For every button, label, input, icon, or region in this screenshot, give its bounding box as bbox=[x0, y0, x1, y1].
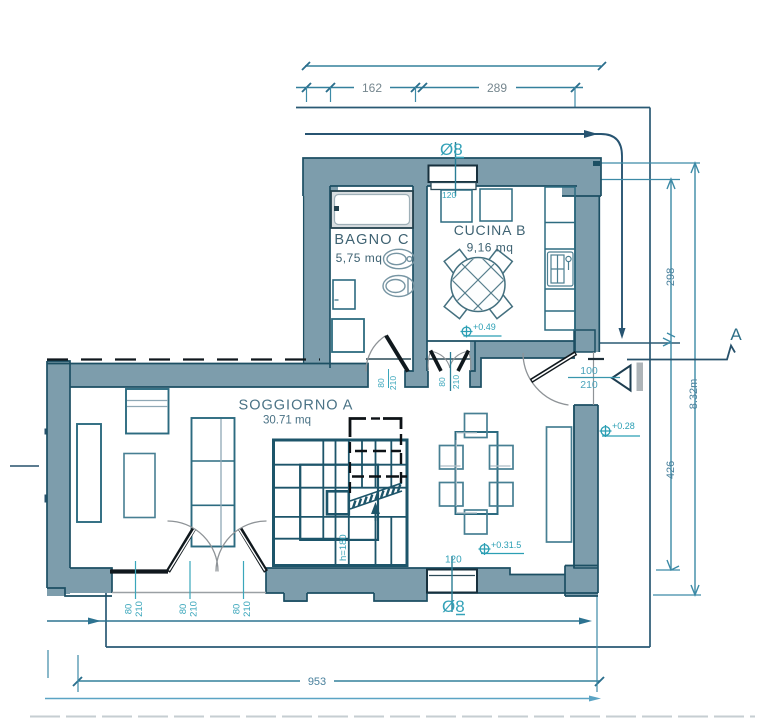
svg-text:426: 426 bbox=[665, 461, 677, 479]
svg-text:A: A bbox=[730, 325, 742, 344]
svg-text:298: 298 bbox=[665, 268, 677, 286]
svg-text:210: 210 bbox=[242, 601, 253, 617]
svg-text:80: 80 bbox=[376, 378, 386, 388]
svg-text:80: 80 bbox=[178, 604, 189, 615]
svg-text:210: 210 bbox=[451, 375, 461, 389]
svg-text:+0.49: +0.49 bbox=[473, 322, 496, 332]
svg-text:210: 210 bbox=[580, 379, 598, 391]
svg-text:Ø8: Ø8 bbox=[440, 140, 463, 159]
svg-text:SOGGIORNO A: SOGGIORNO A bbox=[239, 398, 354, 414]
svg-text:120: 120 bbox=[445, 555, 462, 566]
svg-text:80: 80 bbox=[232, 604, 243, 615]
svg-text:80: 80 bbox=[124, 604, 135, 615]
svg-text:+0.31.5: +0.31.5 bbox=[491, 540, 521, 550]
svg-text:h=180: h=180 bbox=[338, 534, 349, 561]
svg-text:8.32m: 8.32m bbox=[688, 379, 700, 410]
svg-text:210: 210 bbox=[388, 376, 398, 390]
svg-text:289: 289 bbox=[487, 81, 507, 95]
svg-text:162: 162 bbox=[362, 81, 382, 95]
svg-text:953: 953 bbox=[308, 676, 326, 688]
svg-text:120: 120 bbox=[442, 190, 456, 200]
svg-text:5,75 mq: 5,75 mq bbox=[336, 251, 383, 265]
svg-text:BAGNO C: BAGNO C bbox=[334, 232, 409, 248]
svg-text:30.71 mq: 30.71 mq bbox=[263, 415, 311, 427]
svg-text:210: 210 bbox=[189, 601, 200, 617]
svg-text:210: 210 bbox=[134, 601, 145, 617]
svg-text:Ø8: Ø8 bbox=[442, 597, 465, 616]
svg-text:+0.28: +0.28 bbox=[612, 421, 635, 431]
svg-text:9,16 mq: 9,16 mq bbox=[467, 241, 514, 255]
svg-text:CUCINA B: CUCINA B bbox=[454, 222, 527, 238]
svg-text:80: 80 bbox=[437, 377, 447, 387]
svg-text:100: 100 bbox=[580, 365, 598, 377]
